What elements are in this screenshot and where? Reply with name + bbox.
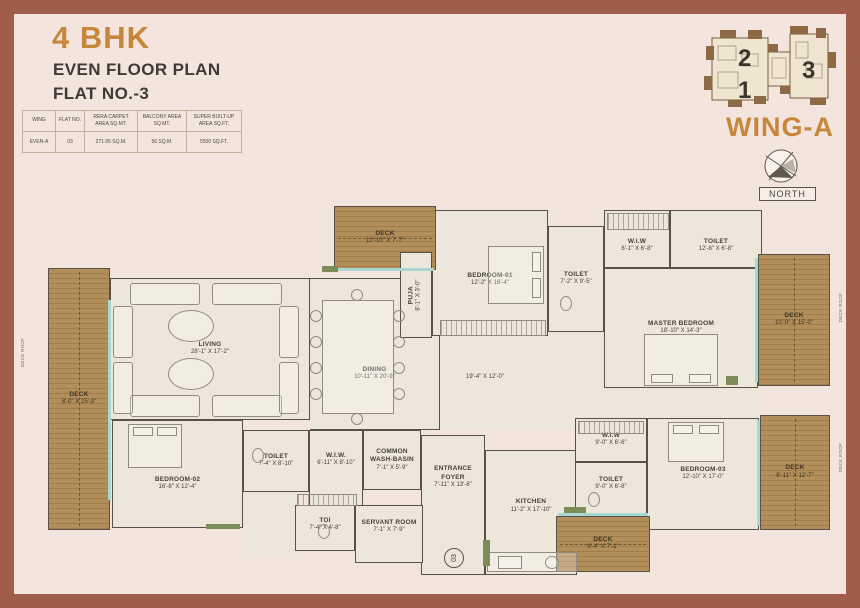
chair-icon bbox=[393, 310, 405, 322]
plan-subtitle: EVEN FLOOR PLAN bbox=[53, 60, 221, 80]
door-sill bbox=[564, 507, 586, 513]
cell-super-builtup: 5500 SQ.FT. bbox=[187, 131, 242, 153]
pillow-icon bbox=[133, 427, 153, 436]
corridor-floor bbox=[243, 492, 297, 554]
area-info-table: WING FLAT NO. RERA CARPET AREA SQ.MT. BA… bbox=[22, 110, 242, 153]
sofa-icon bbox=[279, 362, 299, 414]
bed-bedroom-03 bbox=[668, 422, 724, 462]
glazing-line bbox=[336, 268, 434, 271]
pillow-icon bbox=[689, 374, 711, 383]
bed-bedroom-02 bbox=[128, 424, 182, 468]
pillow-icon bbox=[532, 278, 541, 298]
glazing-line bbox=[757, 420, 760, 526]
cell-rera-carpet: 271.95 SQ.M. bbox=[85, 131, 138, 153]
col-header-super-builtup: SUPER BUILT-UP AREA SQ.FT. bbox=[187, 111, 242, 132]
col-header-balcony: BALCONY AREA SQ.MT. bbox=[138, 111, 187, 132]
pillow-icon bbox=[532, 252, 541, 272]
key-plan-unit-2: 2 bbox=[738, 45, 751, 72]
coffee-table-icon bbox=[168, 310, 214, 342]
pillow-icon bbox=[157, 427, 177, 436]
wc-icon bbox=[252, 448, 264, 463]
door-sill bbox=[322, 266, 338, 272]
dining-table bbox=[322, 300, 394, 414]
hob-icon bbox=[498, 556, 522, 569]
sofa-icon bbox=[279, 306, 299, 358]
cell-flat-no: 03 bbox=[56, 131, 85, 153]
sofa-icon bbox=[212, 283, 282, 305]
sofa-icon bbox=[130, 395, 200, 417]
glazing-line bbox=[108, 300, 111, 500]
room-common-wash-basin: COMMON WASH-BASIN7'-1" X 5'-9" bbox=[363, 430, 421, 490]
col-header-flat-no: FLAT NO. bbox=[56, 111, 85, 132]
chair-icon bbox=[393, 362, 405, 374]
cell-balcony: 56 SQ.M. bbox=[138, 131, 187, 153]
sofa-icon bbox=[212, 395, 282, 417]
bed-master bbox=[644, 334, 718, 386]
flat-number-subtitle: FLAT NO.-3 bbox=[53, 84, 149, 104]
wardrobe-icon bbox=[297, 494, 357, 506]
room-deck-left: DECK8'-0" X 25'-3" bbox=[48, 268, 110, 530]
pillow-icon bbox=[699, 425, 719, 434]
floor-plan-page: 4 BHK EVEN FLOOR PLAN FLAT NO.-3 WING FL… bbox=[0, 0, 860, 608]
cell-wing: EVEN-A bbox=[23, 131, 56, 153]
table-row: EVEN-A 03 271.95 SQ.M. 56 SQ.M. 5500 SQ.… bbox=[23, 131, 242, 153]
chair-icon bbox=[351, 413, 363, 425]
chair-icon bbox=[310, 362, 322, 374]
room-toilet-bedroom-01: TOILET7'-2" X 9'-5" bbox=[548, 226, 604, 332]
room-servant-room: SERVANT ROOM7'-1" X 7'-9" bbox=[355, 505, 423, 563]
wc-icon bbox=[588, 492, 600, 507]
col-header-rera-carpet: RERA CARPET AREA SQ.MT. bbox=[85, 111, 138, 132]
sofa-icon bbox=[130, 283, 200, 305]
door-sill bbox=[726, 376, 738, 385]
room-toilet-bedroom-02: TOILET7'-4" X 8'-10" bbox=[243, 430, 309, 492]
chair-icon bbox=[310, 336, 322, 348]
north-compass-icon bbox=[752, 146, 810, 188]
key-plan-unit-1: 1 bbox=[738, 77, 751, 104]
wc-icon bbox=[560, 296, 572, 311]
bed-bedroom-01 bbox=[488, 246, 544, 304]
sofa-icon bbox=[113, 362, 133, 414]
deck-roof-label-right-top: DECK ROOF bbox=[838, 293, 843, 322]
deck-roof-label-right-bottom: DECK ROOF bbox=[838, 443, 843, 472]
room-puja: PUJA8'-1" X 3'-0" bbox=[400, 252, 432, 338]
wardrobe-icon bbox=[578, 421, 644, 434]
wing-label: WING-A bbox=[712, 112, 848, 143]
chair-icon bbox=[393, 336, 405, 348]
door-sill bbox=[483, 540, 490, 566]
key-plan-unit-3: 3 bbox=[802, 57, 815, 84]
area-info-table-head: WING FLAT NO. RERA CARPET AREA SQ.MT. BA… bbox=[23, 111, 242, 132]
north-label: NORTH bbox=[759, 187, 816, 201]
glazing-line bbox=[755, 258, 758, 382]
pillow-icon bbox=[673, 425, 693, 434]
building-key-plan: 2 1 3 bbox=[702, 24, 838, 114]
deck-roof-label-left: DECK ROOF bbox=[20, 338, 25, 367]
sofa-icon bbox=[113, 306, 133, 358]
chair-icon bbox=[393, 388, 405, 400]
page-title: 4 BHK bbox=[52, 20, 150, 56]
room-toilet-master: TOILET12'-8" X 6'-8" bbox=[670, 210, 762, 268]
chair-icon bbox=[310, 388, 322, 400]
passage-dims-label: 19'-4" X 12'-0" bbox=[448, 374, 522, 380]
room-deck-right-bottom: DECK6'-11" X 12'-7" bbox=[760, 415, 830, 530]
area-info-table-body: EVEN-A 03 271.95 SQ.M. 56 SQ.M. 5500 SQ.… bbox=[23, 131, 242, 153]
glazing-line bbox=[558, 513, 648, 516]
lobby-floor bbox=[604, 386, 758, 418]
coffee-table-icon bbox=[168, 358, 214, 390]
chair-icon bbox=[351, 289, 363, 301]
pillow-icon bbox=[651, 374, 673, 383]
flat-number-marker: 03 bbox=[444, 548, 464, 568]
door-sill bbox=[206, 524, 240, 529]
col-header-wing: WING bbox=[23, 111, 56, 132]
sink-icon bbox=[545, 556, 559, 569]
wardrobe-icon bbox=[607, 213, 669, 230]
wardrobe-icon bbox=[440, 320, 546, 336]
chair-icon bbox=[310, 310, 322, 322]
room-deck-right-top: DECK10'-0" X 15'-0" bbox=[758, 254, 830, 386]
wc-icon bbox=[318, 524, 330, 539]
